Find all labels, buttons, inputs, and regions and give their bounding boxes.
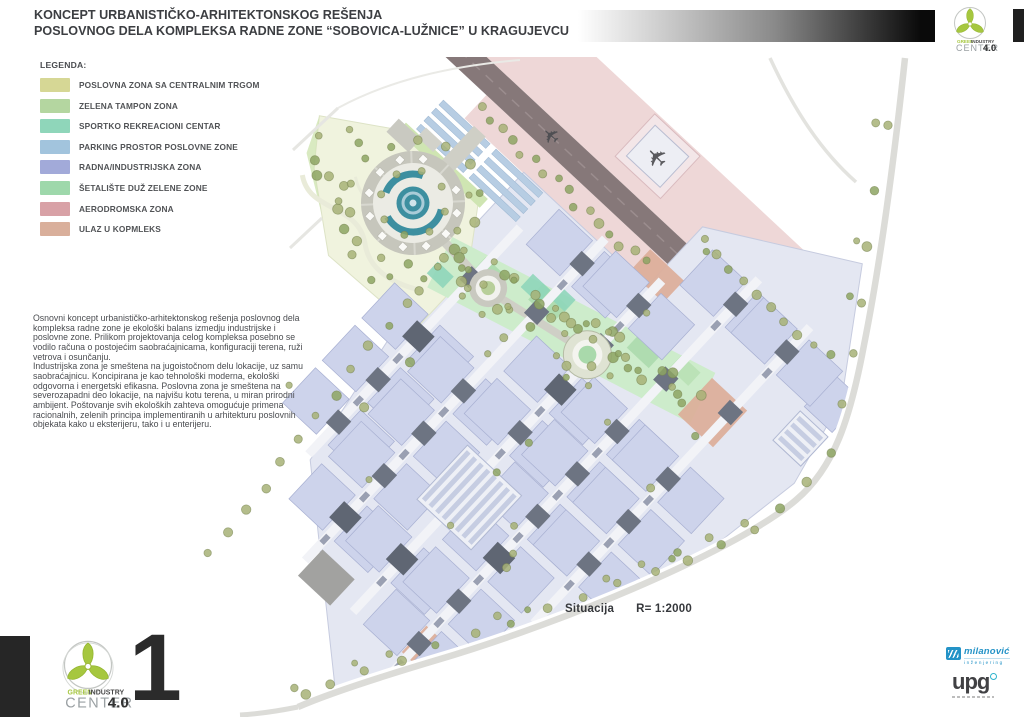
title-line-2: POSLOVNOG DELA KOMPLEKSA RADNE ZONE “SOB… [34,24,569,40]
legend-label: ZELENA TAMPON ZONA [79,101,178,111]
milanovic-logo: milanović inženjering [946,646,1010,665]
legend: LEGENDA: POSLOVNA ZONA SA CENTRALNIM TRG… [40,60,260,243]
legend-label: RADNA/INDUSTRIJSKA ZONA [79,162,202,172]
legend-item: RADNA/INDUSTRIJSKA ZONA [40,160,260,174]
legend-swatch [40,119,70,133]
legend-swatch [40,99,70,113]
description-text: Osnovni koncept urbanističko-arhitektons… [33,314,303,430]
upg-subtitle-line [952,696,994,698]
milanovic-subtitle: inženjering [964,658,1010,665]
gradient-bar [578,10,935,42]
legend-label: PARKING PROSTOR POSLOVNE ZONE [79,142,238,152]
milanovic-icon [946,647,961,660]
upg-circle-icon [990,673,997,680]
legend-label: ŠETALIŠTE DUŽ ZELENE ZONE [79,183,208,193]
legend-swatch [40,140,70,154]
corner-black-chip [1013,9,1024,42]
legend-swatch [40,160,70,174]
legend-heading: LEGENDA: [40,60,260,70]
page-title: KONCEPT URBANISTIČKO-ARHITEKTONSKOG REŠE… [34,8,569,39]
trefoil-leaf-icon [955,9,985,35]
legend-label: AERODROMSKA ZONA [79,204,174,214]
green-industry-center-logo: GREEN INDUSTRY CENTER 4.0 [941,3,999,55]
footer-black-bar [0,636,30,717]
legend-item: ŠETALIŠTE DUŽ ZELENE ZONE [40,181,260,195]
presentation-board: ✈ ✈ [0,0,1024,717]
secondary-road [290,218,322,248]
legend-item: PARKING PROSTOR POSLOVNE ZONE [40,140,260,154]
legend-label: SPORTKO REKREACIONI CENTAR [79,121,221,131]
legend-swatch [40,181,70,195]
title-line-1: KONCEPT URBANISTIČKO-ARHITEKTONSKOG REŠE… [34,8,569,24]
secondary-road [770,58,856,182]
upg-logo: upg [952,672,997,698]
legend-rows: POSLOVNA ZONA SA CENTRALNIM TRGOMZELENA … [40,78,260,236]
green-industry-center-logo: GREEN INDUSTRY CENTER 4.0 [44,632,132,716]
legend-swatch [40,202,70,216]
legend-item: SPORTKO REKREACIONI CENTAR [40,119,260,133]
legend-label: ULAZ U KOPMLEKS [79,224,161,234]
legend-swatch [40,78,70,92]
legend-item: AERODROMSKA ZONA [40,202,260,216]
legend-swatch [40,222,70,236]
logo-version: 4.0 [983,43,996,54]
page-number: 1 [129,625,182,711]
scale-value: R= 1:2000 [636,603,692,615]
milanovic-name: milanović [964,646,1010,657]
legend-item: POSLOVNA ZONA SA CENTRALNIM TRGOM [40,78,260,92]
legend-item: ZELENA TAMPON ZONA [40,99,260,113]
legend-label: POSLOVNA ZONA SA CENTRALNIM TRGOM [79,80,260,90]
scale-label: SituacijaR= 1:2000 [565,603,692,615]
scale-title: Situacija [565,603,614,615]
upg-name: upg [952,669,989,694]
legend-item: ULAZ U KOPMLEKS [40,222,260,236]
logo-version: 4.0 [108,694,129,711]
